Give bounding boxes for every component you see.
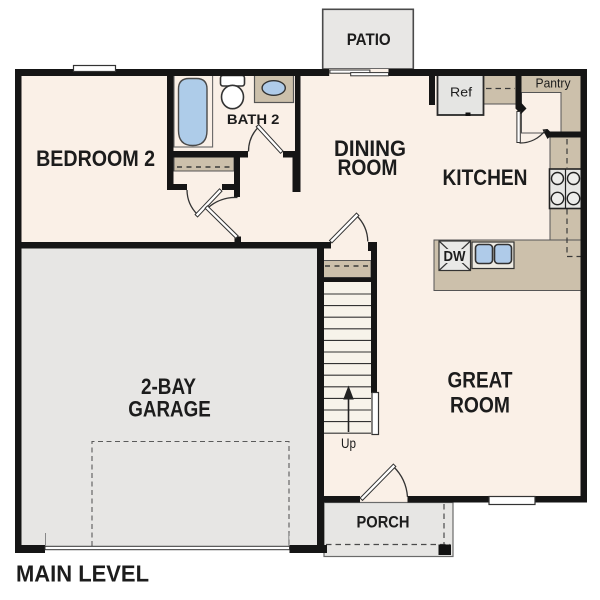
svg-text:Pantry: Pantry (536, 76, 571, 91)
svg-text:BATH 2: BATH 2 (227, 111, 280, 127)
svg-text:GREAT: GREAT (448, 368, 513, 393)
svg-text:MAIN LEVEL: MAIN LEVEL (16, 560, 149, 586)
svg-text:ROOM: ROOM (450, 393, 510, 418)
svg-text:PATIO: PATIO (347, 30, 391, 49)
svg-text:ROOM: ROOM (338, 155, 398, 180)
svg-text:Ref: Ref (450, 86, 473, 100)
svg-text:2-BAY: 2-BAY (141, 374, 196, 399)
svg-text:GARAGE: GARAGE (128, 397, 211, 422)
svg-text:BEDROOM 2: BEDROOM 2 (36, 146, 155, 171)
svg-text:Up: Up (341, 436, 356, 451)
svg-text:KITCHEN: KITCHEN (443, 165, 528, 190)
svg-text:PORCH: PORCH (357, 512, 410, 531)
svg-text:DW: DW (444, 248, 467, 265)
